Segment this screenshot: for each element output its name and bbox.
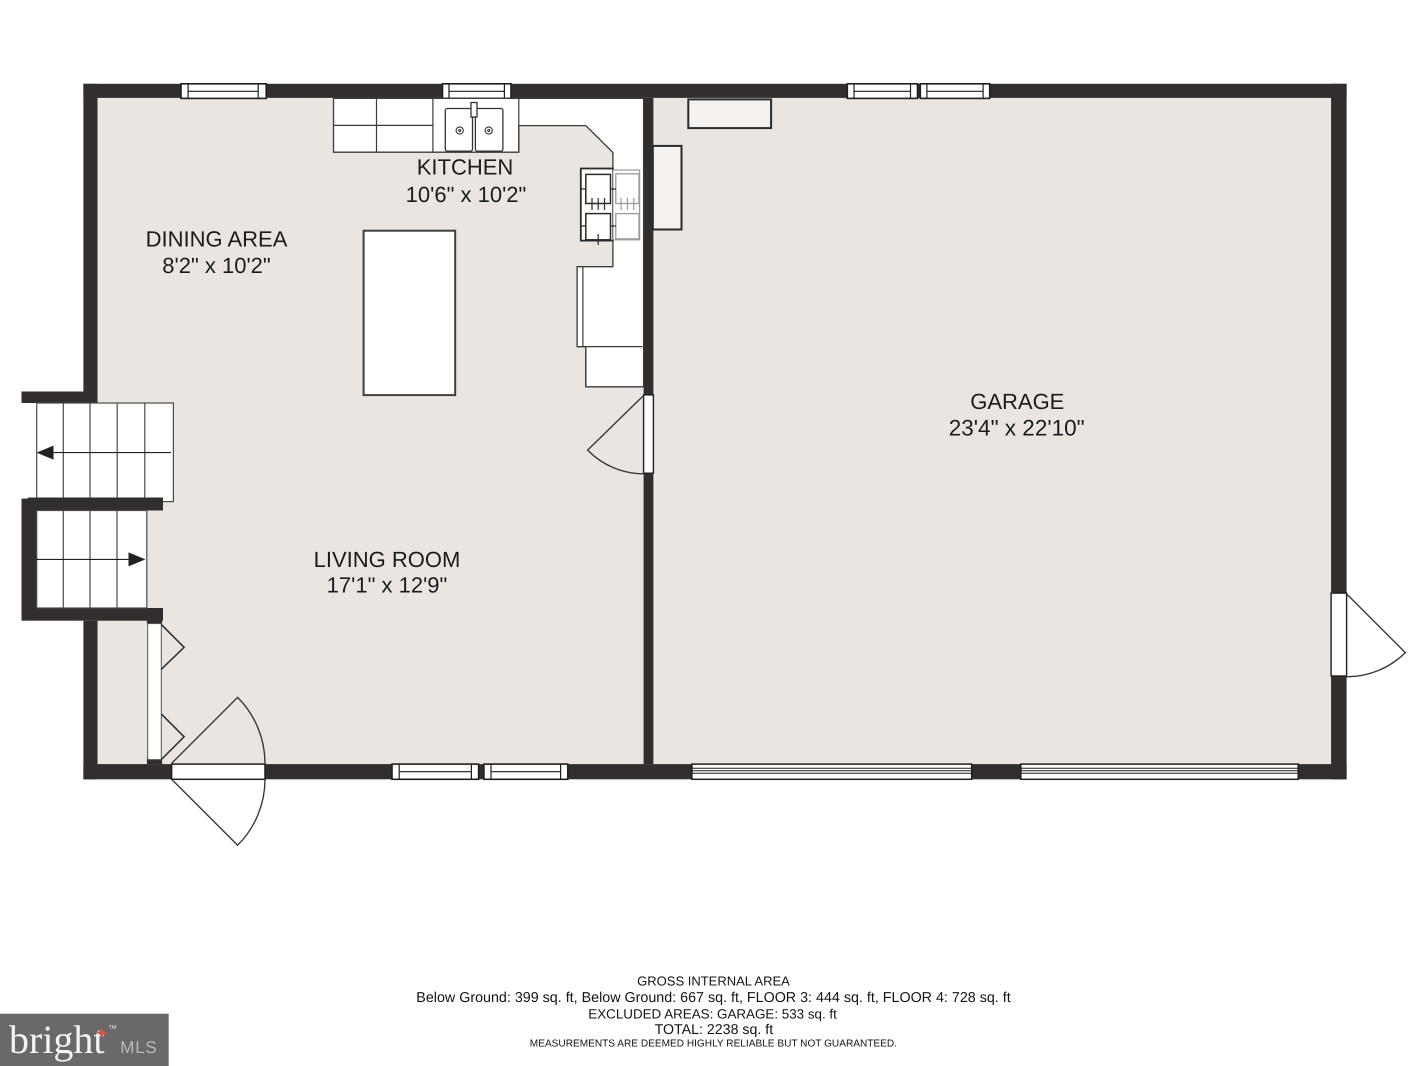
svg-text:DINING AREA: DINING AREA	[146, 226, 288, 251]
svg-text:™: ™	[108, 1024, 117, 1034]
svg-text:KITCHEN: KITCHEN	[417, 155, 514, 180]
svg-text:GROSS INTERNAL AREA: GROSS INTERNAL AREA	[637, 973, 790, 988]
svg-text:23'4" x 22'10": 23'4" x 22'10"	[949, 416, 1085, 441]
svg-text:LIVING ROOM: LIVING ROOM	[314, 547, 461, 572]
svg-text:bright: bright	[9, 1017, 105, 1062]
svg-text:TOTAL: 2238 sq. ft: TOTAL: 2238 sq. ft	[655, 1022, 774, 1038]
svg-text:MLS: MLS	[120, 1038, 157, 1057]
svg-text:GARAGE: GARAGE	[970, 389, 1064, 414]
svg-text:EXCLUDED AREAS: GARAGE: 533 sq: EXCLUDED AREAS: GARAGE: 533 sq. ft	[588, 1006, 837, 1021]
svg-text:Below Ground: 399 sq. ft, Belo: Below Ground: 399 sq. ft, Below Ground: …	[416, 990, 1010, 1006]
svg-text:17'1" x 12'9": 17'1" x 12'9"	[327, 573, 448, 598]
svg-text:10'6" x 10'2": 10'6" x 10'2"	[406, 182, 527, 207]
svg-text:8'2" x 10'2": 8'2" x 10'2"	[162, 253, 270, 278]
svg-text:MEASUREMENTS ARE DEEMED HIGHLY: MEASUREMENTS ARE DEEMED HIGHLY RELIABLE …	[530, 1039, 897, 1050]
